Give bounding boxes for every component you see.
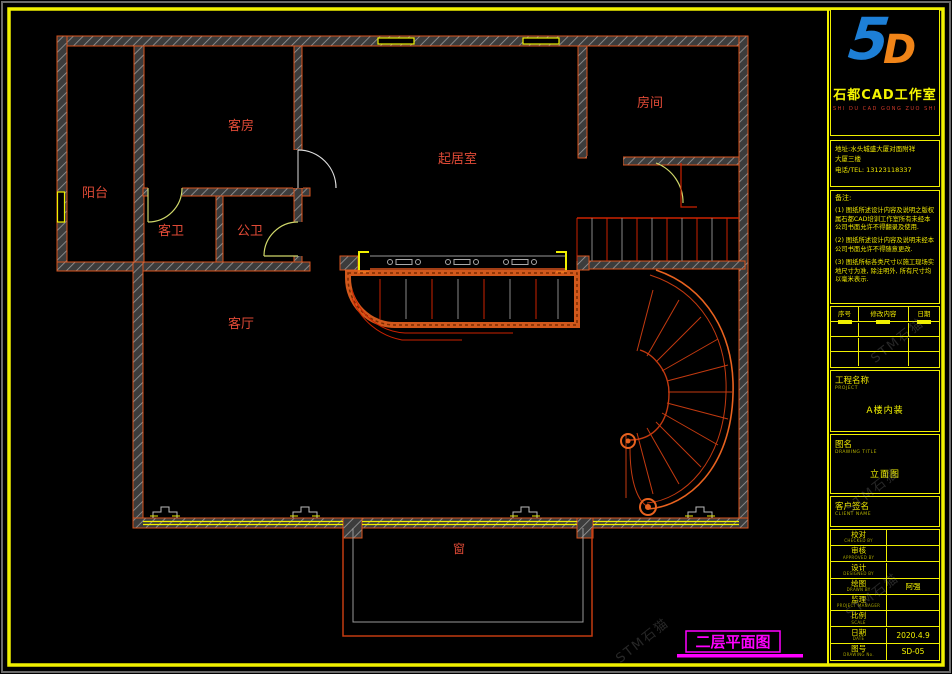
window-label: 窗 (453, 542, 465, 556)
info-value-number: SD-05 (887, 644, 939, 660)
room-label-guest-room: 客房 (228, 118, 254, 134)
info-label-number: 图号DRAWING No. (831, 644, 887, 660)
room-label-balcony: 阳台 (82, 186, 108, 201)
guest-room-door (298, 150, 336, 188)
drawing-title-section: 图名 DRAWING TITLE 立面图 (830, 434, 940, 494)
drawing-caption: 二层平面图 (677, 631, 803, 658)
pilaster-marks (150, 507, 715, 518)
rev-col-date: 日期 (909, 307, 939, 322)
info-label-manager: 监理PROJECT MANAGER (831, 595, 887, 611)
note-item: (2) 图纸所述设计内容及说明未经本公司书面允许不得随意更改. (835, 237, 935, 255)
info-value-scale (887, 611, 939, 627)
address-section: 地址:水头城盛大厦对面附祥 大厦三楼 电话/TEL: 13123118337 (830, 140, 940, 187)
room-door (656, 163, 697, 207)
studio-name: 石都CAD工作室 (831, 84, 939, 103)
info-label-approved: 审核APPROVED BY (831, 546, 887, 562)
floor-plan-canvas: 阳台 客房 起居室 房间 客卫 公卫 客厅 窗 二层平面图 (0, 0, 952, 674)
room-label-hall: 客厅 (228, 316, 254, 332)
info-table: 校对CHECKED BY 审核APPROVED BY 设计DESIGNED BY… (830, 529, 940, 661)
info-label-checked: 校对CHECKED BY (831, 530, 887, 546)
client-section: 客户签名 CLIENT NAME (830, 496, 940, 527)
drawing-title-label: 图名 (831, 435, 939, 450)
note-item: (1) 图纸所述设计内容及说明之版权属石都CAD培训工作室所有未经本公司书面允许… (835, 207, 935, 233)
curved-treads (626, 290, 732, 498)
room-label-room: 房间 (637, 95, 663, 111)
room-label-guest-bath: 客卫 (158, 223, 184, 239)
curved-stair (621, 270, 733, 515)
drawing-title-label-en: DRAWING TITLE (831, 450, 939, 455)
notes-section: 备注: (1) 图纸所述设计内容及说明之版权属石都CAD培训工作室所有未经本公司… (830, 190, 940, 304)
rev-cell (831, 352, 859, 366)
rev-col-content: 修改内容 (859, 307, 909, 322)
info-label-designed: 设计DESIGNED BY (831, 563, 887, 579)
room-label-public-bath: 公卫 (237, 224, 263, 239)
rev-cell (859, 352, 909, 366)
address-line1: 地址:水头城盛大厦对面附祥 (835, 144, 935, 154)
info-value-designed (887, 563, 939, 579)
notes-title: 备注: (835, 194, 935, 204)
info-value-date: 2020.4.9 (887, 628, 939, 644)
note-item: (3) 图纸所标各类尺寸以施工现场实地尺寸为准, 除注明外, 所有尺寸均以毫米表… (835, 259, 935, 285)
address-line3: 电话/TEL: 13123118337 (835, 165, 935, 175)
project-label: 工程名称 (831, 371, 939, 386)
logo-section: 5 D 石都CAD工作室 SHI DU CAD GONG ZUO SHI (830, 9, 940, 136)
rev-cell (909, 338, 939, 352)
info-label-drawn: 绘图DRAWN BY (831, 579, 887, 595)
bay-window (343, 528, 592, 636)
rev-cell (909, 323, 939, 337)
info-label-scale: 比例SCALE (831, 611, 887, 627)
rev-cell (909, 352, 939, 366)
project-label-en: PROJECT (831, 386, 939, 391)
info-value-checked (887, 530, 939, 546)
stair-run (577, 218, 739, 261)
void-dividers (380, 279, 558, 319)
project-section: 工程名称 PROJECT A楼内装 (830, 370, 940, 432)
project-value: A楼内装 (831, 403, 939, 416)
room-label-living-room: 起居室 (438, 151, 477, 167)
caption-text: 二层平面图 (695, 633, 770, 651)
drawing-title-value: 立面图 (831, 467, 939, 480)
rev-cell (831, 338, 859, 352)
title-block: 5 D 石都CAD工作室 SHI DU CAD GONG ZUO SHI 地址:… (830, 9, 942, 665)
rev-cell (859, 338, 909, 352)
rev-cell (831, 323, 859, 337)
revision-table: 序号 修改内容 日期 (830, 306, 940, 368)
info-label-date: 日期DATE (831, 628, 887, 644)
client-label-en: CLIENT NAME (831, 512, 939, 517)
logo-glyph-orange: D (883, 30, 916, 70)
studio-logo: 5 D (831, 16, 939, 80)
client-label: 客户签名 (831, 497, 939, 512)
studio-pinyin: SHI DU CAD GONG ZUO SHI (831, 106, 939, 112)
rev-cell (859, 323, 909, 337)
stair-void (348, 252, 577, 340)
info-value-drawn: 阿强 (887, 579, 939, 595)
rev-col-no: 序号 (831, 307, 859, 322)
balusters (388, 260, 537, 265)
address-line2: 大厦三楼 (835, 154, 935, 164)
cad-sheet: 阳台 客房 起居室 房间 客卫 公卫 客厅 窗 二层平面图 5 D 石都CAD工… (0, 0, 952, 674)
public-bath-door (264, 222, 298, 256)
info-value-approved (887, 546, 939, 562)
info-value-manager (887, 595, 939, 611)
